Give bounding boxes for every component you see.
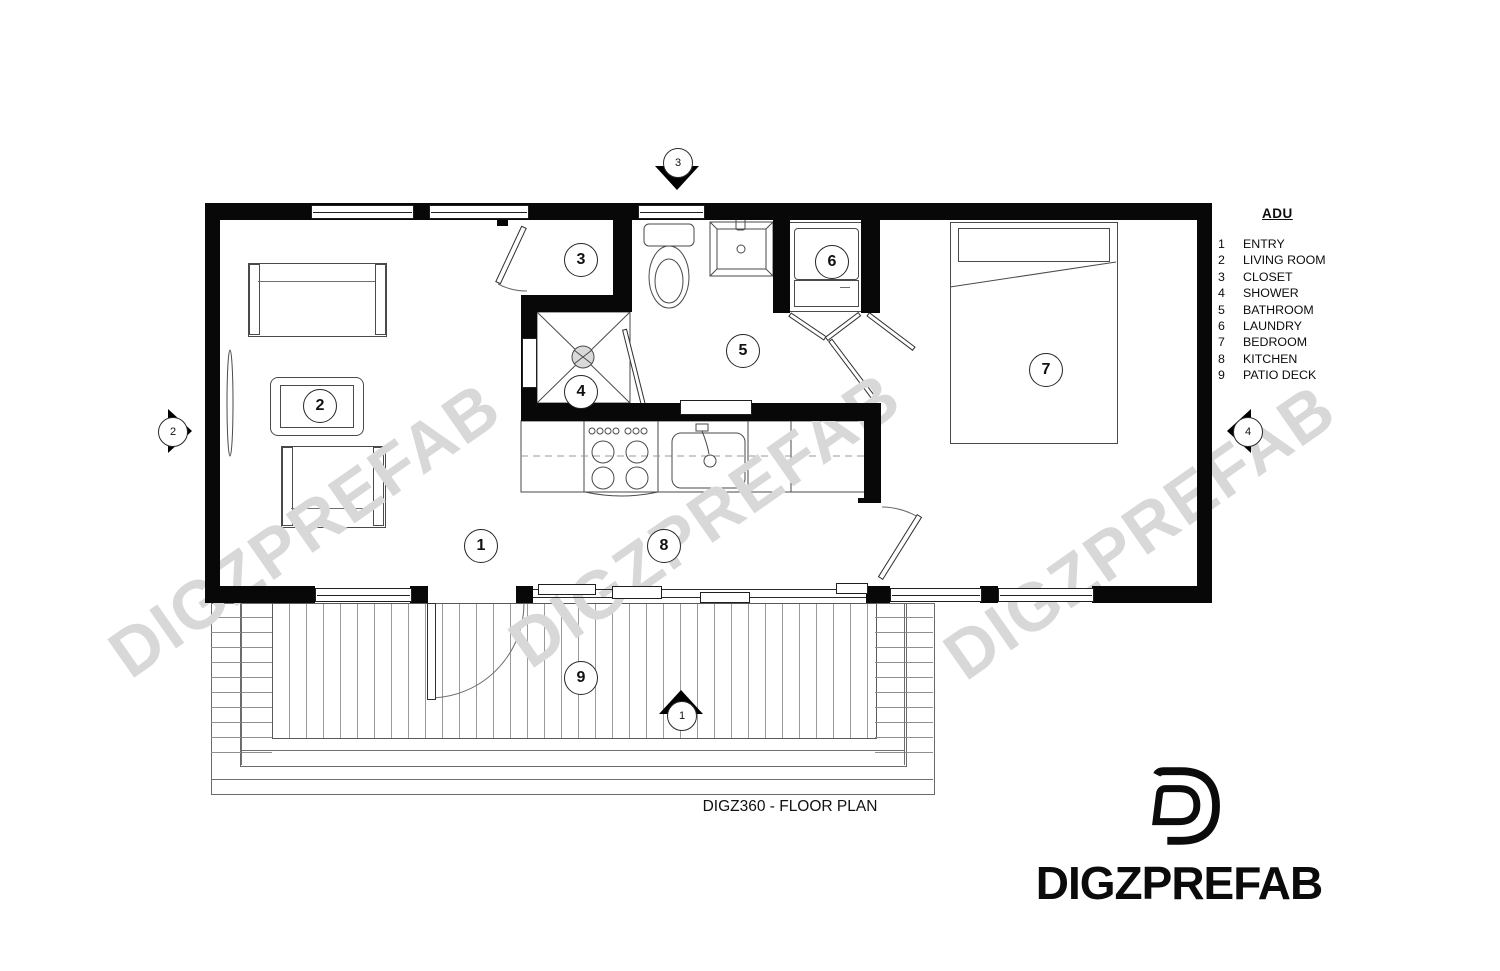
wall-post — [516, 586, 533, 603]
legend-row: 1ENTRY — [1218, 236, 1398, 252]
room-badge-kitchen: 8 — [647, 529, 681, 563]
bathroom-laundry-wall — [773, 220, 790, 313]
exterior-wall-left — [205, 203, 220, 603]
bedroom-door-arc — [882, 507, 918, 517]
legend-label: LIVING ROOM — [1243, 252, 1326, 268]
room-badge-bedroom: 7 — [1029, 353, 1063, 387]
room-badge-patio-deck: 9 — [564, 661, 598, 695]
legend-label: ENTRY — [1243, 236, 1285, 252]
digzprefab-logo-icon — [1132, 766, 1220, 846]
stove — [585, 428, 658, 496]
legend-row: 3CLOSET — [1218, 269, 1398, 285]
sliding-door-panel — [612, 586, 662, 599]
section-marker-4: 4 — [1233, 417, 1263, 447]
legend-row: 8KITCHEN — [1218, 351, 1398, 367]
toilet — [644, 224, 694, 308]
room-badge-living-room: 2 — [303, 389, 337, 423]
legend-num: 5 — [1218, 302, 1243, 318]
sliding-door-panel — [700, 592, 750, 603]
exterior-wall-bottom — [1092, 586, 1212, 603]
legend-num: 6 — [1218, 318, 1243, 334]
kitchen-bedroom-wall — [864, 421, 881, 503]
legend-label: CLOSET — [1243, 269, 1293, 285]
legend-label: KITCHEN — [1243, 351, 1297, 367]
legend-row: 4SHOWER — [1218, 285, 1398, 301]
closet-bottom-wall — [521, 295, 632, 312]
pass-through-ledge — [680, 400, 752, 415]
room-badge-shower: 4 — [564, 375, 598, 409]
door-hinge-stub — [497, 218, 508, 226]
room-badge-laundry: 6 — [815, 245, 849, 279]
legend-num: 2 — [1218, 252, 1243, 268]
wall-panel — [227, 350, 233, 456]
brand-logo-text: DIGZPREFAB — [1003, 856, 1355, 910]
legend-label: PATIO DECK — [1243, 367, 1316, 383]
legend-row: 5BATHROOM — [1218, 302, 1398, 318]
window — [998, 588, 1094, 602]
section-marker-2: 2 — [158, 417, 188, 447]
legend-label: LAUNDRY — [1243, 318, 1302, 334]
legend-label: BEDROOM — [1243, 334, 1307, 350]
window — [638, 205, 705, 219]
window — [429, 205, 529, 219]
legend-row: 6LAUNDRY — [1218, 318, 1398, 334]
legend-num: 1 — [1218, 236, 1243, 252]
window — [890, 588, 982, 602]
legend-row: 9PATIO DECK — [1218, 367, 1398, 383]
legend-row: 7BEDROOM — [1218, 334, 1398, 350]
legend-title: ADU — [1262, 206, 1398, 221]
window — [315, 588, 412, 602]
room-badge-closet: 3 — [564, 243, 598, 277]
sliding-door-panel — [836, 583, 868, 594]
wall-post — [410, 586, 428, 603]
laundry-bedroom-wall — [861, 220, 880, 313]
wall-cap — [858, 498, 881, 503]
legend-num: 8 — [1218, 351, 1243, 367]
legend-num: 9 — [1218, 367, 1243, 383]
legend-row: 2LIVING ROOM — [1218, 252, 1398, 268]
sliding-door-panel — [538, 584, 596, 595]
entry-door — [427, 603, 436, 700]
room-badge-bathroom: 5 — [726, 334, 760, 368]
legend-num: 7 — [1218, 334, 1243, 350]
exterior-wall-bottom — [205, 586, 315, 603]
floor-plan-sheet: DIGZPREFAB DIGZPREFAB DIGZPREFAB — [0, 0, 1500, 971]
closet-door-arc — [498, 284, 527, 291]
legend-label: SHOWER — [1243, 285, 1299, 301]
wall-post — [980, 586, 998, 603]
vanity-sink — [710, 217, 773, 276]
legend: ADU 1ENTRY 2LIVING ROOM 3CLOSET 4SHOWER … — [1218, 206, 1398, 384]
exterior-wall-right — [1197, 203, 1212, 603]
wall-niche — [522, 338, 537, 388]
legend-num: 3 — [1218, 269, 1243, 285]
room-badge-entry: 1 — [464, 529, 498, 563]
legend-num: 4 — [1218, 285, 1243, 301]
plan-title: DIGZ360 - FLOOR PLAN — [600, 798, 980, 816]
section-marker-3: 3 — [663, 148, 693, 178]
legend-label: BATHROOM — [1243, 302, 1314, 318]
section-marker-1: 1 — [667, 701, 697, 731]
window — [311, 205, 414, 219]
wall-post — [866, 586, 890, 603]
bed-fold-line — [950, 262, 1116, 287]
